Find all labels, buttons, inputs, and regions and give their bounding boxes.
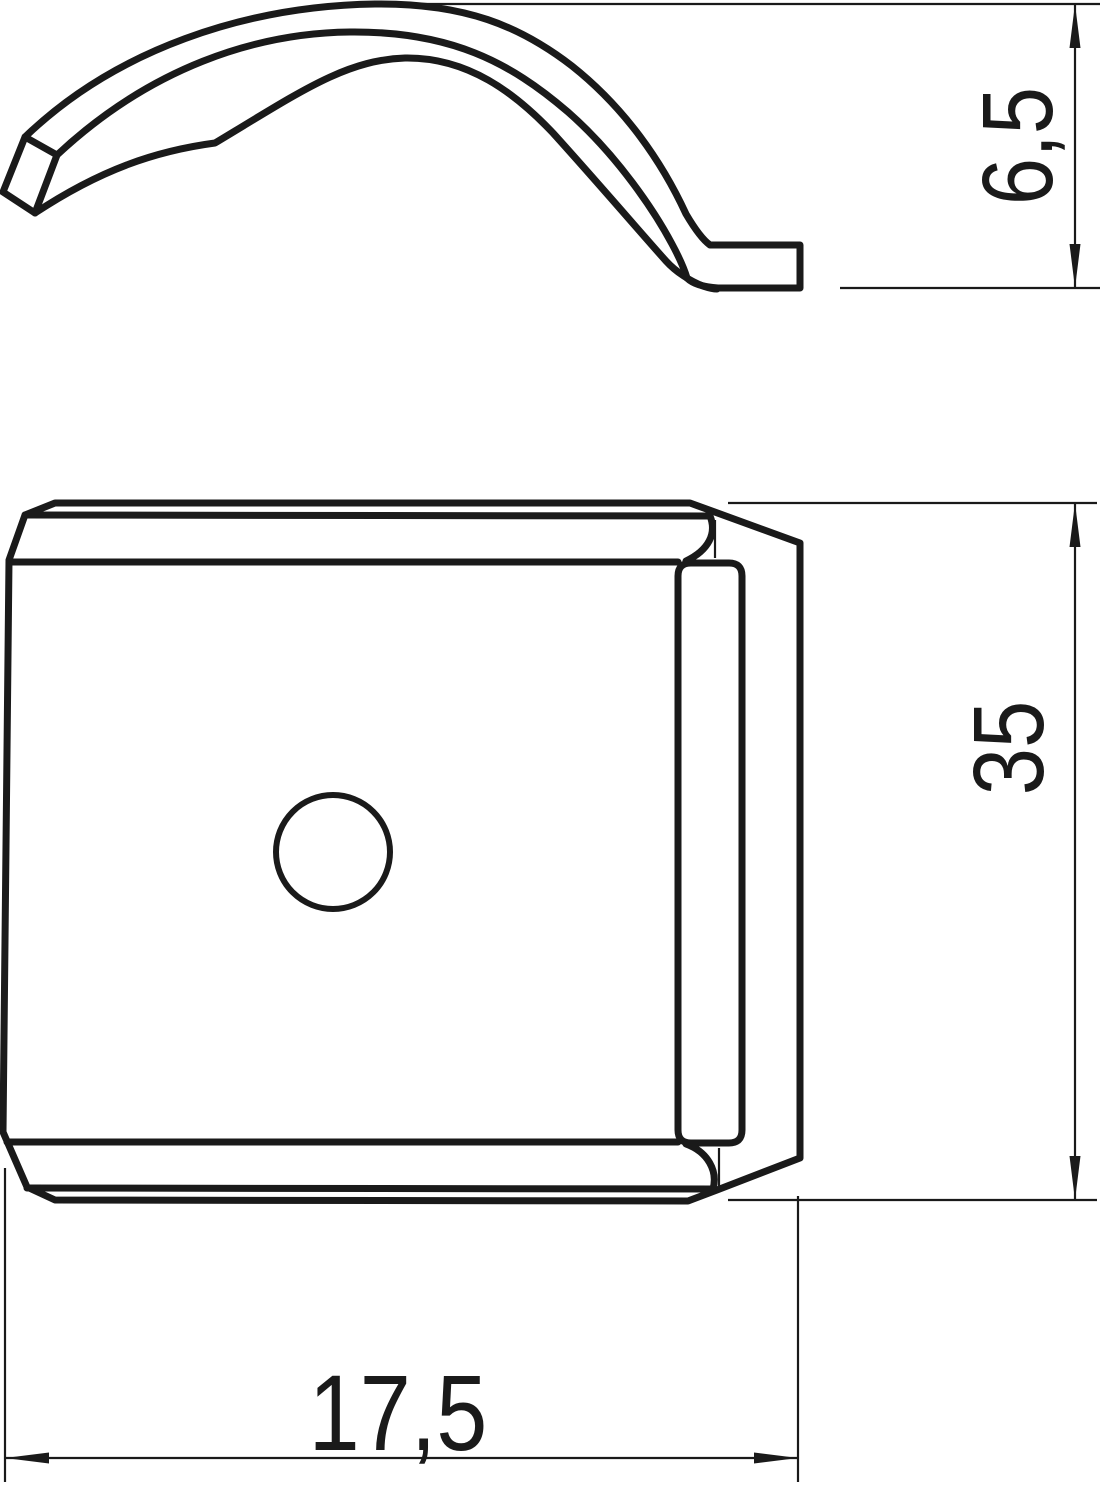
front-plate-view bbox=[3, 503, 800, 1201]
center-hole bbox=[276, 795, 390, 909]
clip-outer-curve-and-foot bbox=[25, 4, 800, 288]
arrowhead-down bbox=[1070, 244, 1081, 288]
arrowhead-right bbox=[754, 1453, 798, 1464]
dimension-value: 17,5 bbox=[309, 1353, 488, 1474]
dimension-value: 6,5 bbox=[961, 87, 1073, 205]
dimension-plate-width: 17,5 bbox=[5, 1168, 798, 1482]
arrowhead-down bbox=[1070, 1156, 1081, 1200]
technical-drawing-canvas: 6,5 35 17,5 bbox=[0, 0, 1116, 1500]
drawing-sheet: 6,5 35 17,5 bbox=[0, 0, 1116, 1500]
side-profile-view bbox=[3, 4, 800, 289]
plate-side-tab bbox=[678, 563, 742, 1143]
dimension-plate-height: 35 bbox=[728, 503, 1097, 1200]
plate-top-fold-crest bbox=[25, 515, 712, 561]
arrowhead-left bbox=[5, 1453, 49, 1464]
arrowhead-up bbox=[1070, 4, 1081, 48]
arrowhead-up bbox=[1070, 503, 1081, 547]
plate-bottom-fold-crest bbox=[27, 1144, 714, 1189]
dimension-value: 35 bbox=[952, 701, 1064, 796]
